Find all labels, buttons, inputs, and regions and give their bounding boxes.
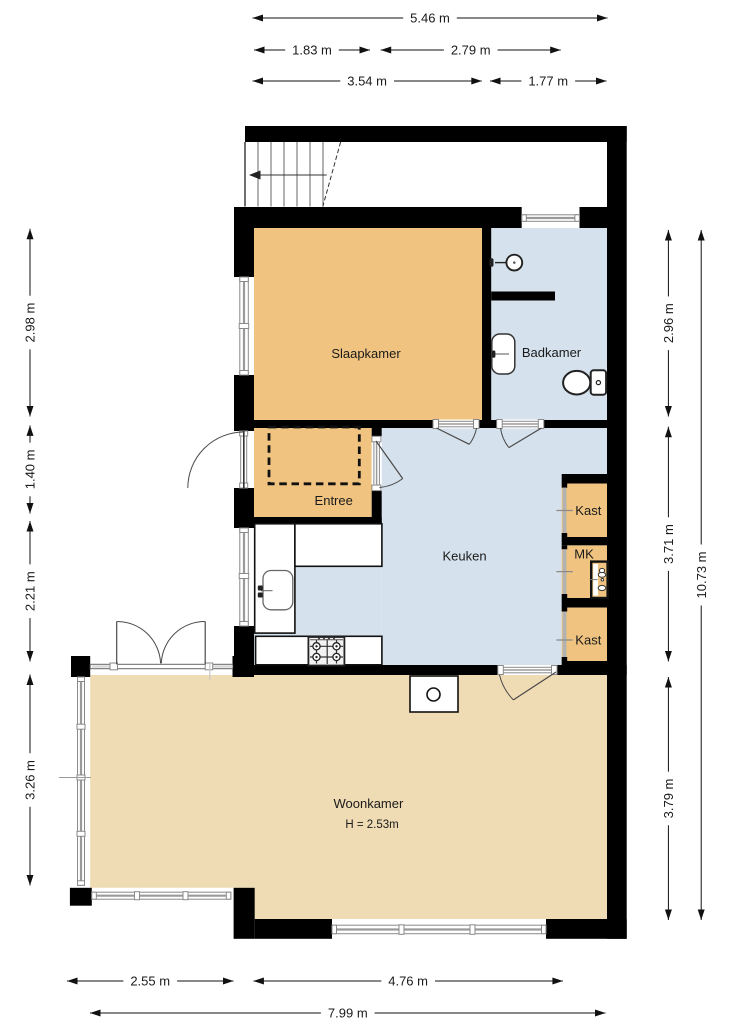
svg-text:Woonkamer: Woonkamer bbox=[333, 796, 404, 811]
svg-text:4.76 m: 4.76 m bbox=[388, 974, 428, 989]
svg-text:Slaapkamer: Slaapkamer bbox=[331, 346, 401, 361]
svg-text:2.55 m: 2.55 m bbox=[130, 974, 170, 989]
svg-text:2.21 m: 2.21 m bbox=[23, 571, 38, 611]
svg-text:Badkamer: Badkamer bbox=[522, 345, 582, 360]
svg-text:10.73 m: 10.73 m bbox=[694, 552, 709, 599]
svg-text:1.83 m: 1.83 m bbox=[292, 43, 332, 58]
svg-text:1.40 m: 1.40 m bbox=[23, 450, 38, 490]
svg-text:7.99 m: 7.99 m bbox=[328, 1006, 368, 1021]
svg-text:2.96 m: 2.96 m bbox=[661, 303, 676, 343]
svg-text:Kast: Kast bbox=[575, 503, 601, 518]
svg-text:2.98 m: 2.98 m bbox=[23, 303, 38, 343]
svg-text:MK: MK bbox=[574, 547, 594, 562]
svg-text:5.46 m: 5.46 m bbox=[410, 11, 450, 26]
svg-text:3.26 m: 3.26 m bbox=[23, 760, 38, 800]
svg-text:1.77 m: 1.77 m bbox=[528, 74, 568, 89]
svg-text:Kast: Kast bbox=[575, 633, 601, 648]
svg-text:Keuken: Keuken bbox=[442, 549, 486, 564]
svg-text:2.79 m: 2.79 m bbox=[451, 43, 491, 58]
svg-text:3.54 m: 3.54 m bbox=[347, 74, 387, 89]
svg-text:3.79 m: 3.79 m bbox=[661, 779, 676, 819]
svg-text:H = 2.53m: H = 2.53m bbox=[345, 819, 398, 831]
svg-text:Entree: Entree bbox=[315, 493, 353, 508]
svg-text:3.71 m: 3.71 m bbox=[661, 524, 676, 564]
